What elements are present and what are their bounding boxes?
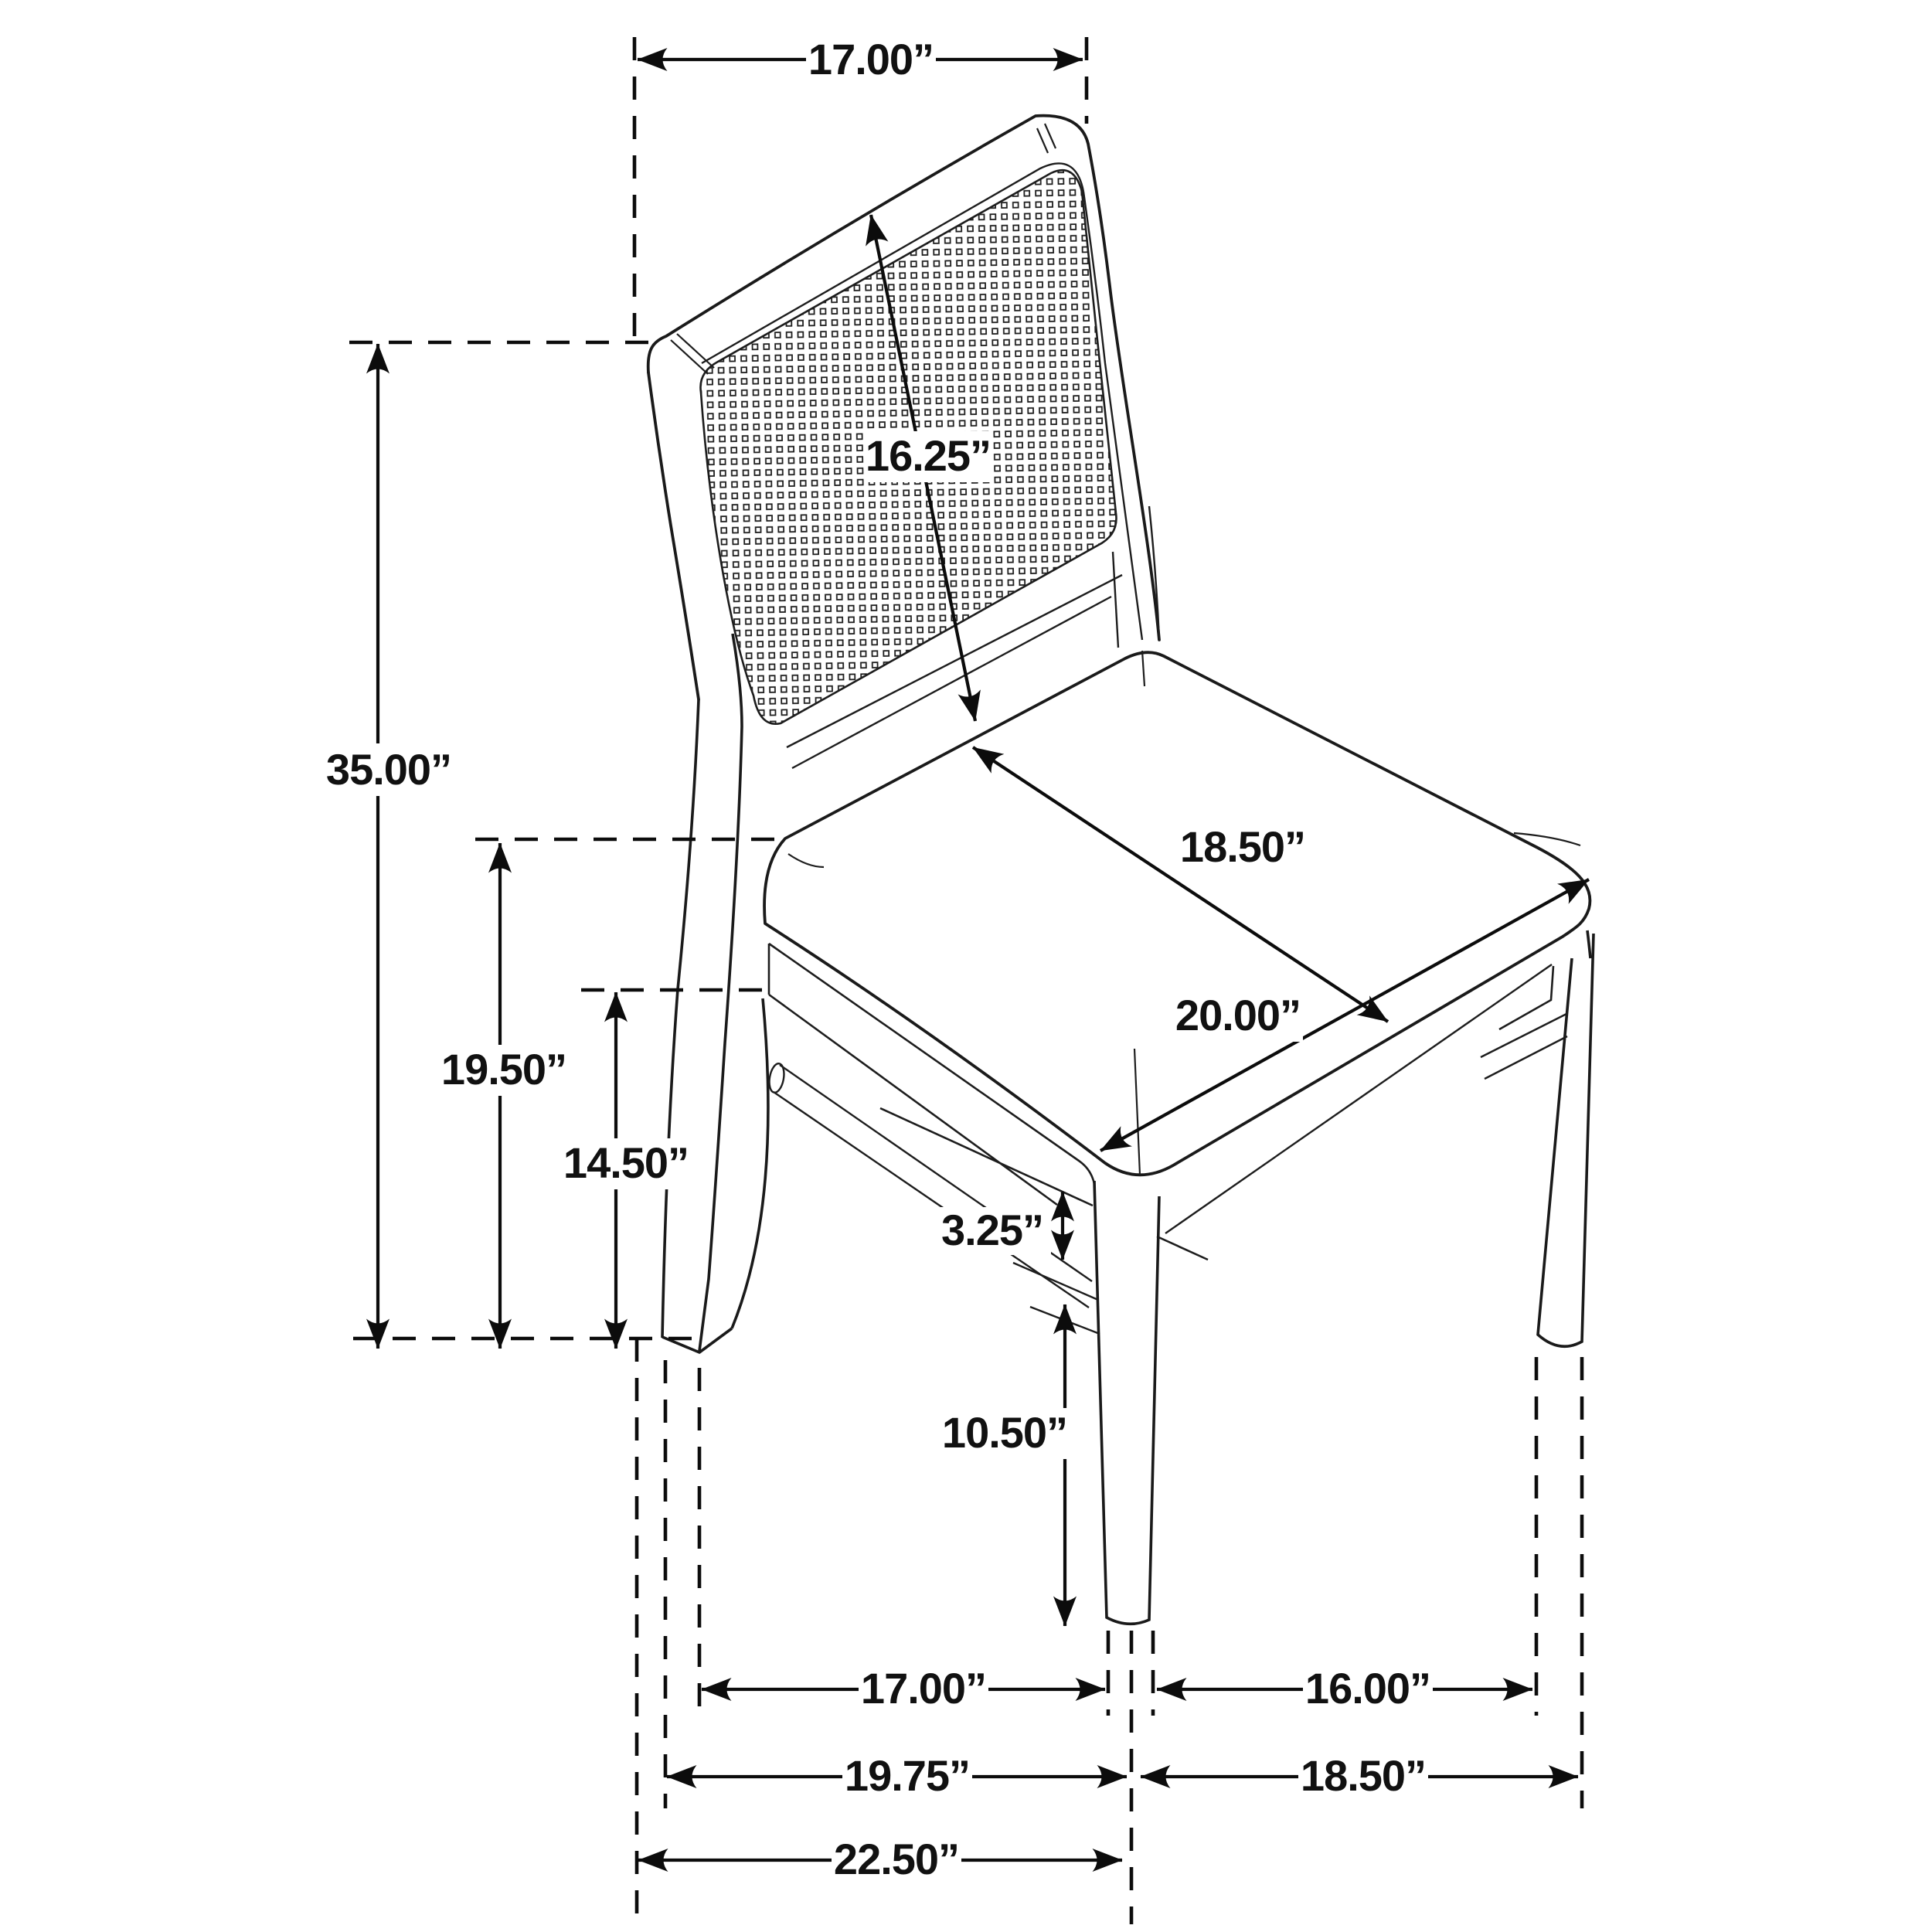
svg-text:17.00”: 17.00” (808, 35, 934, 83)
svg-text:19.75”: 19.75” (845, 1751, 970, 1800)
svg-text:20.00”: 20.00” (1175, 991, 1301, 1039)
svg-text:14.50”: 14.50” (563, 1138, 689, 1187)
svg-text:18.50”: 18.50” (1301, 1751, 1426, 1800)
svg-text:19.50”: 19.50” (441, 1045, 566, 1094)
svg-text:17.00”: 17.00” (861, 1664, 986, 1713)
svg-text:10.50”: 10.50” (942, 1408, 1067, 1457)
svg-text:16.25”: 16.25” (866, 431, 991, 480)
svg-text:16.00”: 16.00” (1305, 1664, 1430, 1713)
svg-text:22.50”: 22.50” (834, 1835, 959, 1883)
svg-text:3.25”: 3.25” (941, 1206, 1043, 1254)
svg-text:35.00”: 35.00” (326, 745, 451, 794)
svg-text:18.50”: 18.50” (1180, 822, 1305, 871)
